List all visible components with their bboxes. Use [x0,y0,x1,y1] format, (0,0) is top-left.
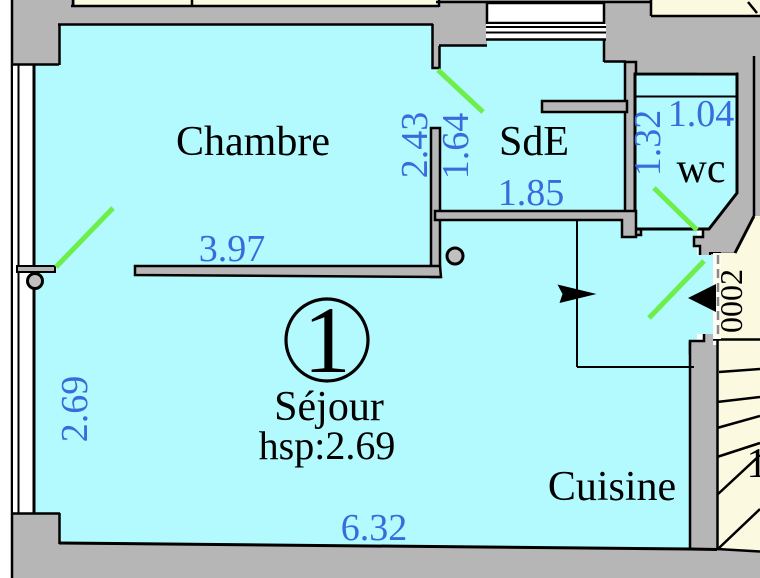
svg-text:1.64: 1.64 [435,113,477,180]
svg-text:2.69: 2.69 [54,376,96,443]
svg-text:1.32: 1.32 [627,110,669,177]
svg-text:hsp:2.69: hsp:2.69 [259,423,396,468]
svg-text:1: 1 [303,287,351,393]
svg-text:6.32: 6.32 [341,507,408,549]
svg-text:1: 1 [747,441,760,487]
svg-text:1.85: 1.85 [498,172,565,214]
svg-text:0002: 0002 [713,269,749,333]
svg-text:Chambre: Chambre [176,119,330,165]
svg-text:Cuisine: Cuisine [548,464,676,510]
svg-text:1.04: 1.04 [668,93,735,135]
svg-text:3.97: 3.97 [199,228,266,270]
svg-text:2.43: 2.43 [394,112,436,179]
svg-text:wc: wc [677,146,726,192]
svg-text:SdE: SdE [499,119,569,165]
